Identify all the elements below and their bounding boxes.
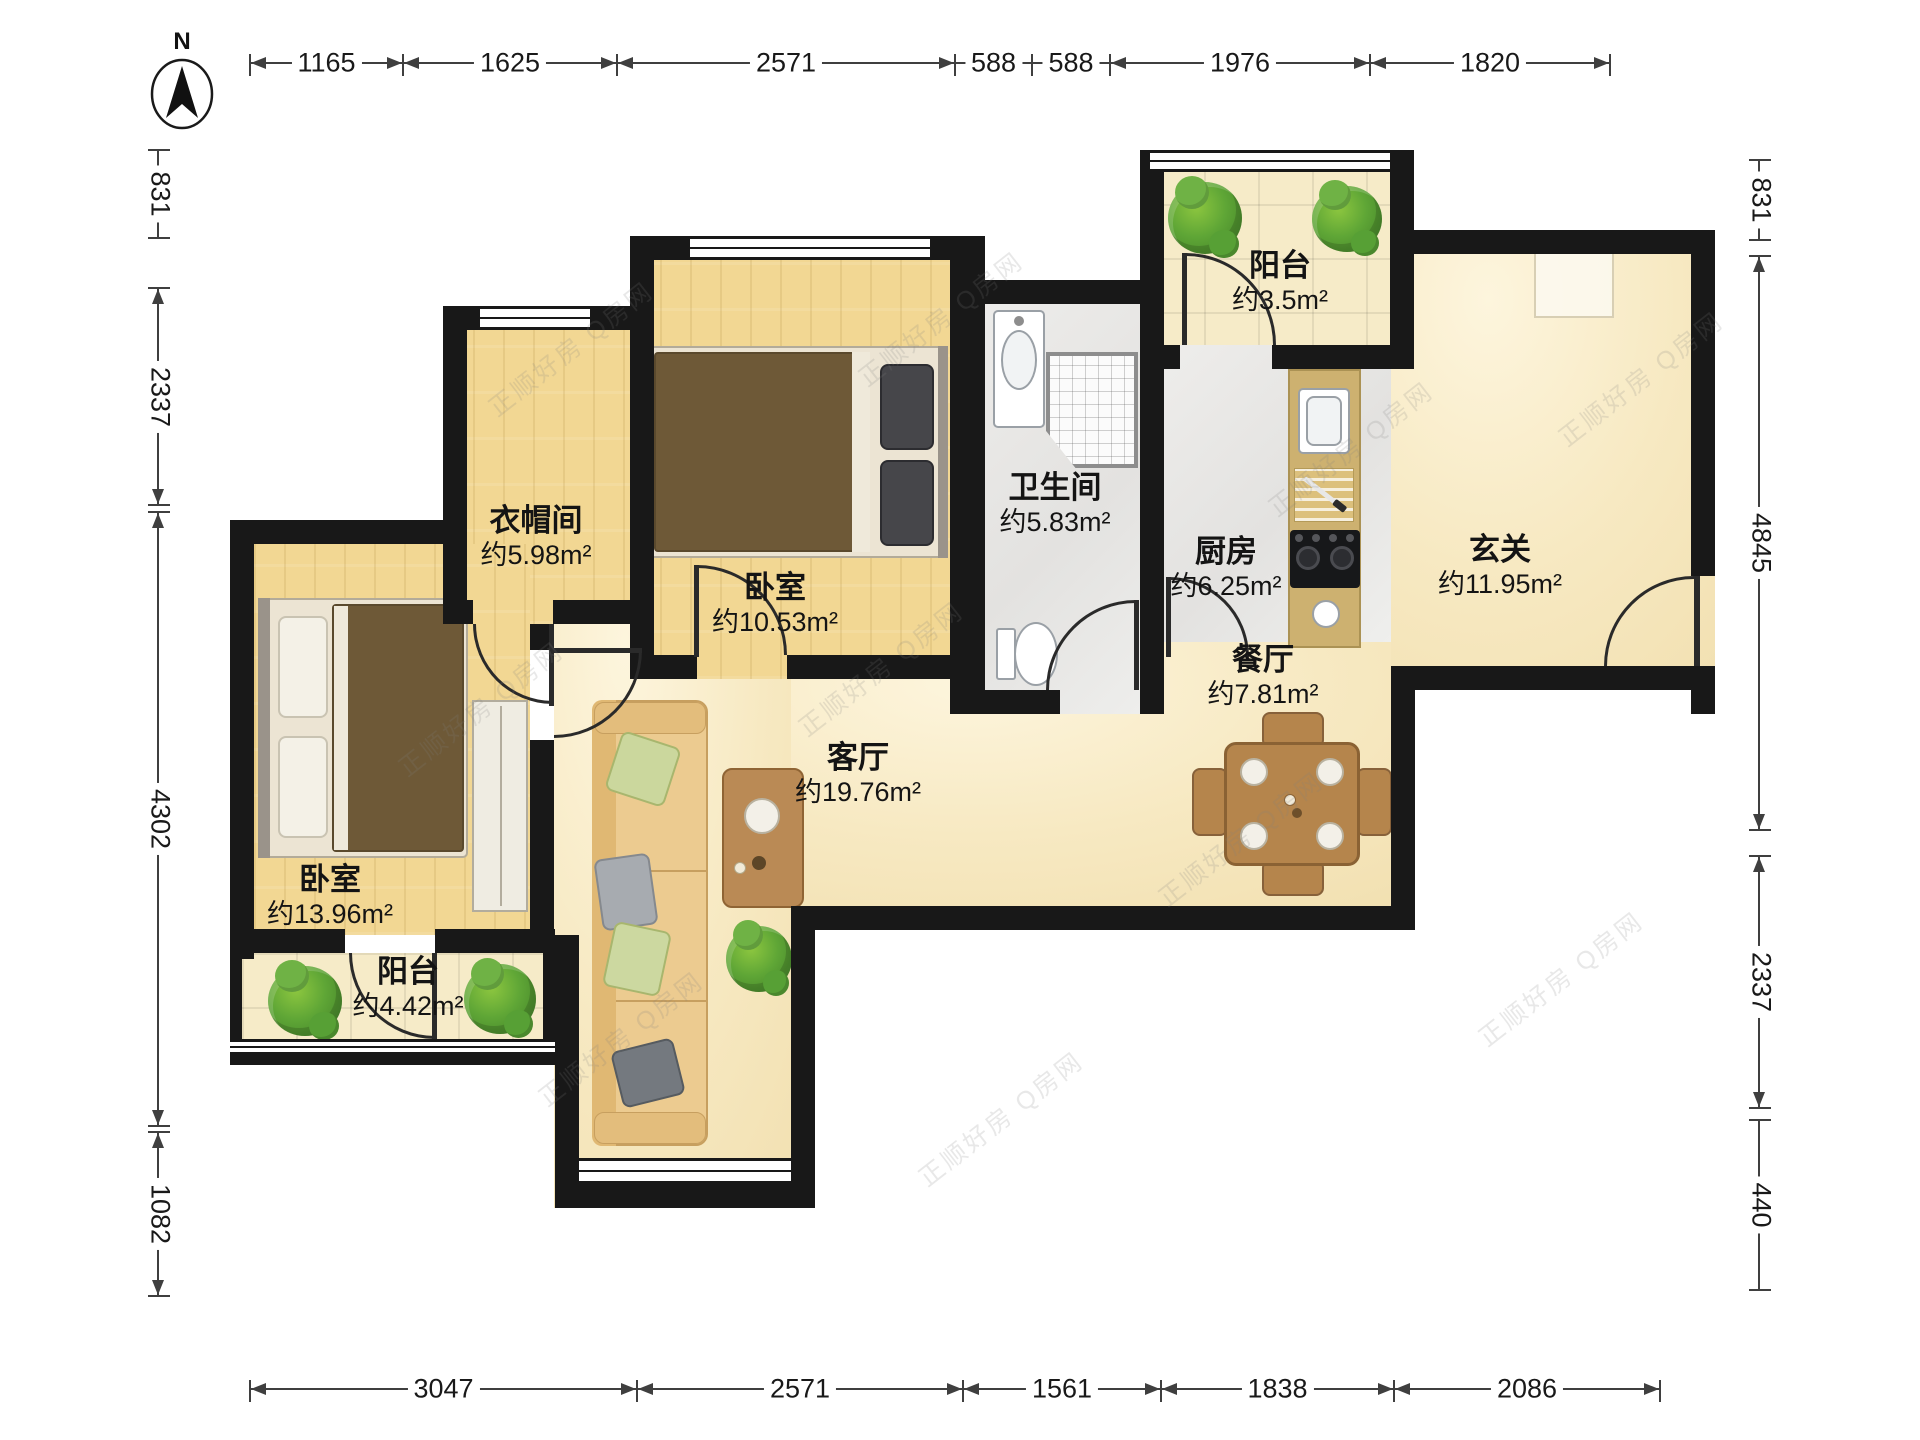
dimension-top-5: 1976 bbox=[1110, 62, 1370, 64]
wall bbox=[553, 600, 630, 624]
watermark: 正顺好房 Q房网 bbox=[910, 1042, 1090, 1194]
plant-icon bbox=[464, 964, 536, 1034]
toilet bbox=[996, 628, 1016, 680]
pillow bbox=[880, 460, 934, 546]
bed-duvet bbox=[654, 352, 860, 552]
wall bbox=[1391, 690, 1415, 930]
wall bbox=[230, 520, 254, 959]
window bbox=[230, 1039, 555, 1055]
coffee-table-plate bbox=[744, 798, 780, 834]
dimension-bottom-4: 2086 bbox=[1394, 1388, 1660, 1390]
dimension-right-0: 831 bbox=[1758, 160, 1760, 240]
balcony-rail bbox=[230, 953, 242, 1051]
wall bbox=[1390, 150, 1414, 369]
stove-knob bbox=[1312, 534, 1320, 542]
dimension-bottom-3: 1838 bbox=[1161, 1388, 1394, 1390]
wall bbox=[1391, 666, 1715, 690]
sofa-pillow bbox=[593, 852, 658, 931]
dimension-top-0: 1165 bbox=[250, 62, 403, 64]
wall bbox=[443, 306, 467, 624]
balcony-rail bbox=[230, 1055, 555, 1065]
dimension-top-4: 588 bbox=[1032, 62, 1110, 64]
wall bbox=[791, 906, 815, 1208]
stove-burner bbox=[1330, 546, 1354, 570]
stove-knob bbox=[1346, 534, 1354, 542]
wall bbox=[230, 929, 345, 953]
wall bbox=[443, 600, 473, 624]
dimension-bottom-0: 3047 bbox=[250, 1388, 637, 1390]
faucet-icon bbox=[1014, 316, 1024, 326]
dimension-right-1: 4845 bbox=[1758, 256, 1760, 830]
stove-knob bbox=[1295, 534, 1303, 542]
wall bbox=[1272, 345, 1391, 369]
watermark: 正顺好房 Q房网 bbox=[1470, 902, 1650, 1054]
room-label-cloakroom: 衣帽间 约5.98m² bbox=[480, 505, 591, 569]
dimension-left-3: 1082 bbox=[157, 1132, 159, 1296]
bed-headboard bbox=[938, 346, 948, 558]
dimension-left-2: 4302 bbox=[157, 512, 159, 1126]
kitchen-bowl bbox=[1312, 600, 1340, 628]
compass-n-label: N bbox=[146, 28, 218, 56]
bed-headboard bbox=[258, 598, 270, 858]
balcony-rail bbox=[543, 953, 555, 1051]
dining-chair bbox=[1192, 768, 1228, 836]
wall bbox=[1140, 150, 1164, 714]
pillow bbox=[278, 736, 328, 838]
north-arrow-icon bbox=[146, 56, 218, 132]
wardrobe bbox=[472, 700, 528, 912]
plant-icon bbox=[726, 926, 792, 992]
room-label-living: 客厅 约19.76m² bbox=[795, 742, 921, 806]
coffee-table bbox=[722, 768, 804, 908]
dimension-right-3: 440 bbox=[1758, 1120, 1760, 1290]
dining-plate bbox=[1316, 822, 1344, 850]
wall bbox=[1164, 345, 1180, 369]
wall bbox=[230, 520, 467, 544]
sofa-armrest bbox=[594, 1112, 706, 1144]
coffee-table-item bbox=[734, 862, 746, 874]
dining-plate bbox=[1240, 758, 1268, 786]
dimension-top-2: 2571 bbox=[617, 62, 955, 64]
bathroom-basin bbox=[1001, 330, 1037, 390]
window bbox=[1150, 150, 1390, 172]
dining-chair bbox=[1356, 768, 1392, 836]
room-label-bedroom-top: 卧室 约10.53m² bbox=[712, 572, 838, 636]
room-label-kitchen: 厨房 约6.25m² bbox=[1170, 536, 1281, 600]
dimension-left-0: 831 bbox=[157, 150, 159, 238]
compass: N bbox=[146, 28, 218, 137]
dimension-top-1: 1625 bbox=[403, 62, 617, 64]
wall bbox=[555, 1184, 815, 1208]
room-label-balcony-bottom: 阳台 约4.42m² bbox=[352, 956, 463, 1020]
room-label-bedroom-bottom: 卧室 约13.96m² bbox=[267, 864, 393, 928]
window bbox=[579, 1158, 791, 1184]
dimension-right-2: 2337 bbox=[1758, 856, 1760, 1108]
room-label-bathroom: 卫生间 约5.83m² bbox=[999, 472, 1110, 536]
wall bbox=[1691, 230, 1715, 576]
dimension-top-6: 1820 bbox=[1370, 62, 1610, 64]
dimension-top-3: 588 bbox=[955, 62, 1032, 64]
dimension-bottom-1: 2571 bbox=[637, 1388, 963, 1390]
wall bbox=[654, 655, 697, 679]
wall bbox=[985, 690, 1060, 714]
wall bbox=[435, 929, 555, 953]
bed-sheet-fold bbox=[334, 606, 348, 850]
room-label-balcony-top: 阳台 约3.5m² bbox=[1232, 250, 1328, 314]
plant-icon bbox=[1312, 186, 1382, 252]
dimension-bottom-2: 1561 bbox=[963, 1388, 1161, 1390]
window bbox=[690, 236, 930, 260]
wall bbox=[1414, 230, 1715, 254]
wall bbox=[791, 906, 1415, 930]
stove-knob bbox=[1329, 534, 1337, 542]
plant-icon bbox=[268, 966, 342, 1036]
wall bbox=[530, 740, 554, 935]
coffee-table-item bbox=[752, 856, 766, 870]
plant-icon bbox=[1168, 182, 1242, 254]
pillow bbox=[278, 616, 328, 718]
dimension-left-1: 2337 bbox=[157, 288, 159, 505]
room-label-hallway: 玄关 约11.95m² bbox=[1438, 534, 1562, 598]
door-leaf bbox=[1694, 576, 1700, 666]
floor-plan: 衣帽间 约5.98m² 卧室 约10.53m² 卫生间 约5.83m² 厨房 约… bbox=[0, 0, 1920, 1440]
stove-burner bbox=[1296, 546, 1320, 570]
room-label-dining: 餐厅 约7.81m² bbox=[1207, 644, 1318, 708]
